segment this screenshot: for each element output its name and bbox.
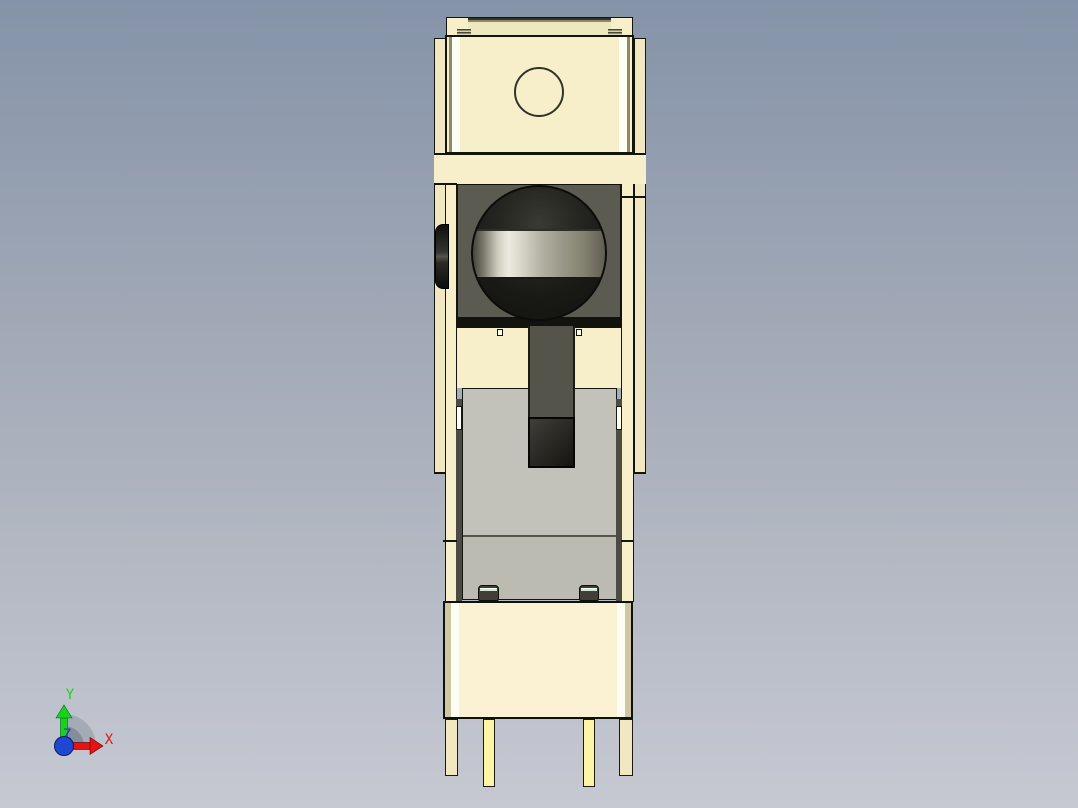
z-axis-ball[interactable]: [55, 737, 74, 756]
plunger-arm-lower[interactable]: [528, 417, 575, 468]
metal-band[interactable]: [473, 229, 605, 279]
mount-pin-inner-right[interactable]: [583, 719, 595, 787]
orientation-triad: Z Y X: [14, 682, 124, 792]
latch-clip-right[interactable]: [579, 585, 599, 601]
shoulder-notch-left: [497, 329, 503, 336]
shoulder-notch-right: [576, 329, 582, 336]
white-inlay-left: [452, 37, 460, 152]
cap-step-right: [608, 29, 622, 35]
mount-pin-outer-right[interactable]: [619, 719, 633, 776]
top-cap-channel: [468, 18, 611, 35]
shoulder-left[interactable]: [457, 326, 528, 388]
edge-line-right: [621, 196, 646, 198]
shoulder-right[interactable]: [575, 326, 621, 388]
white-inlay-right: [619, 37, 627, 152]
column-cut-right: [621, 540, 634, 542]
side-pivot-knob[interactable]: [435, 224, 449, 289]
base-edge-right: [625, 603, 631, 717]
x-axis-label: X: [105, 732, 114, 748]
mount-pin-inner-left[interactable]: [483, 719, 495, 787]
pilot-hole[interactable]: [514, 67, 564, 117]
latch-clip-left[interactable]: [478, 585, 499, 601]
guide-slot-left[interactable]: [456, 406, 462, 430]
cad-viewport[interactable]: Z Y X: [0, 0, 1078, 808]
base-white-inlay-left: [451, 603, 459, 717]
base-white-inlay-right: [617, 603, 625, 717]
ball-lens-sphere[interactable]: [471, 185, 607, 321]
base-housing[interactable]: [443, 601, 633, 719]
guide-slot-right[interactable]: [616, 406, 622, 430]
plunger-arm-upper[interactable]: [528, 326, 575, 417]
y-axis-label: Y: [66, 687, 75, 703]
side-rail-right[interactable]: [634, 38, 646, 474]
clip-accent-right: [581, 588, 597, 591]
mount-pin-outer-left[interactable]: [445, 719, 458, 776]
slider-parting-line: [463, 535, 616, 537]
column-cut-left: [443, 540, 457, 542]
clip-accent-left: [480, 588, 497, 591]
top-face-plate[interactable]: [446, 36, 633, 153]
mid-cream-band[interactable]: [434, 153, 646, 184]
edge-shadow-right: [627, 37, 630, 152]
edge-line-left: [434, 183, 457, 185]
top-cap-bar[interactable]: [446, 17, 633, 36]
cap-step-left: [457, 29, 471, 35]
